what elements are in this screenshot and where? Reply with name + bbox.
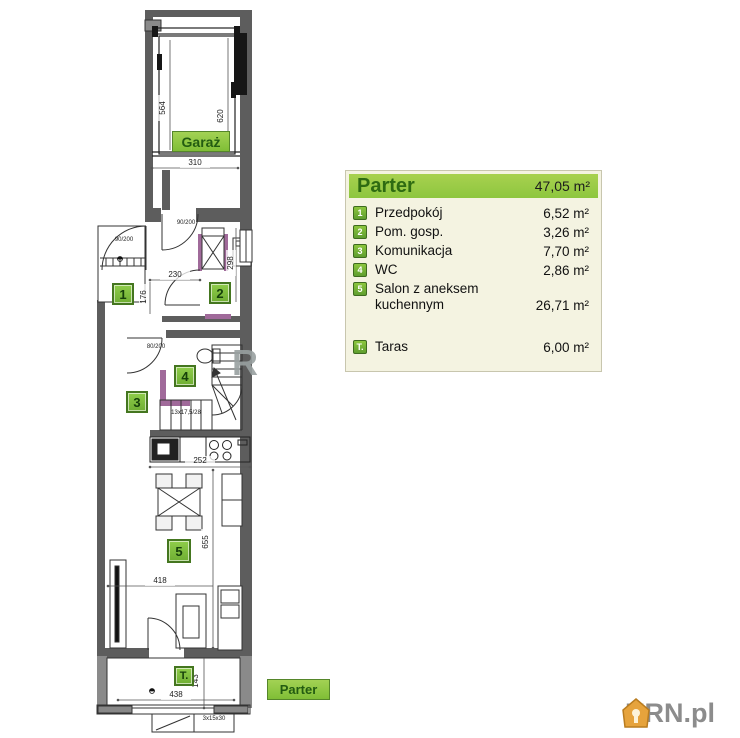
- dim-garage-depth-left: 564: [158, 95, 168, 121]
- legend-title: Parter: [357, 175, 415, 198]
- legend-room-name: Przedpokój: [375, 205, 523, 221]
- terrace-door-arc: [148, 618, 180, 650]
- legend-room-name: WC: [375, 262, 523, 278]
- toilet-icon: [197, 349, 213, 363]
- dining-table: [156, 474, 202, 530]
- house-icon: [622, 698, 650, 728]
- stove-burner: [210, 441, 219, 450]
- chair: [186, 516, 202, 530]
- legend-row: 5 Salon z aneksem kuchennym 26,71 m²: [353, 281, 589, 313]
- dim-door-entry: 90/200: [112, 237, 136, 244]
- legend-total-area: 47,05 m²: [535, 178, 590, 194]
- dim-door-wc: 80/200: [144, 344, 168, 351]
- dim-terrace-width: 438: [161, 690, 191, 700]
- legend-room-name: Komunikacja: [375, 243, 523, 259]
- dim-garage-depth-right: 620: [216, 103, 226, 129]
- legend-room-name: Taras: [375, 339, 523, 355]
- legend-room-name: Pom. gosp.: [375, 224, 523, 240]
- legend-rows: 1 Przedpokój 6,52 m² 2 Pom. gosp. 3,26 m…: [349, 198, 598, 355]
- legend-room-area: 7,70 m²: [543, 244, 589, 259]
- krn-logo: KRN.pl: [622, 698, 715, 729]
- legend-room-area: 6,00 m²: [543, 340, 589, 355]
- legend-room-name: Salon z aneksem kuchennym: [375, 281, 523, 313]
- dim-stairs: 13x17,5/28: [166, 410, 206, 417]
- legend-row: 1 Przedpokój 6,52 m²: [353, 205, 589, 221]
- garage-label: Garaż: [172, 131, 230, 152]
- dim-salon-width: 418: [145, 576, 175, 586]
- legend-badge: 4: [353, 263, 367, 277]
- legend-row: 4 WC 2,86 m²: [353, 262, 589, 278]
- room-badge-4: 4: [174, 365, 196, 387]
- room-badge-1: 1: [112, 283, 134, 305]
- watermark: R: [232, 342, 258, 384]
- dim-ext-steps: 3x15x30: [196, 716, 232, 723]
- chair: [156, 516, 172, 530]
- chair: [186, 474, 202, 488]
- dim-door-garage: 90/200: [174, 220, 198, 227]
- dim-hall-width: 230: [160, 270, 190, 280]
- staircase: [160, 345, 242, 430]
- legend-panel: Parter 47,05 m² 1 Przedpokój 6,52 m² 2 P…: [345, 170, 602, 372]
- legend-row-taras: T. Taras 6,00 m²: [353, 339, 589, 355]
- legend-badge: 3: [353, 244, 367, 258]
- legend-badge: 2: [353, 225, 367, 239]
- sink-icon: [157, 443, 170, 455]
- dimension-strip: [234, 33, 247, 95]
- dim-kitchen-width: 252: [185, 456, 215, 466]
- garage-door: [157, 28, 239, 34]
- floor-plan-page: 564 620 310 230 176 298 252 655 418 438 …: [0, 0, 740, 738]
- stove-burner: [223, 441, 232, 450]
- legend-header: Parter 47,05 m²: [349, 174, 598, 198]
- legend-badge: 5: [353, 282, 367, 296]
- legend-room-area: 2,86 m²: [543, 263, 589, 278]
- dim-hall-depth: 176: [139, 284, 149, 310]
- legend-row: 2 Pom. gosp. 3,26 m²: [353, 224, 589, 240]
- dim-salon-depth: 655: [201, 529, 211, 555]
- legend-room-area: 6,52 m²: [543, 206, 589, 221]
- legend-badge: T.: [353, 340, 367, 354]
- coffee-table: [183, 606, 199, 638]
- chair: [156, 474, 172, 488]
- legend-badge: 1: [353, 206, 367, 220]
- dim-room2-depth: 298: [226, 250, 236, 276]
- room-badge-3: 3: [126, 391, 148, 413]
- legend-room-area: 26,71 m²: [536, 298, 589, 313]
- room-badge-2: 2: [209, 282, 231, 304]
- legend-row: 3 Komunikacja 7,70 m²: [353, 243, 589, 259]
- room-badge-5: 5: [167, 539, 191, 563]
- room-badge-terrace: T.: [174, 666, 194, 686]
- garage-door-posts: [152, 26, 247, 98]
- floor-tag: Parter: [267, 679, 330, 700]
- legend-room-area: 3,26 m²: [543, 225, 589, 240]
- stove-burner: [223, 452, 231, 460]
- dim-garage-width: 310: [180, 158, 210, 168]
